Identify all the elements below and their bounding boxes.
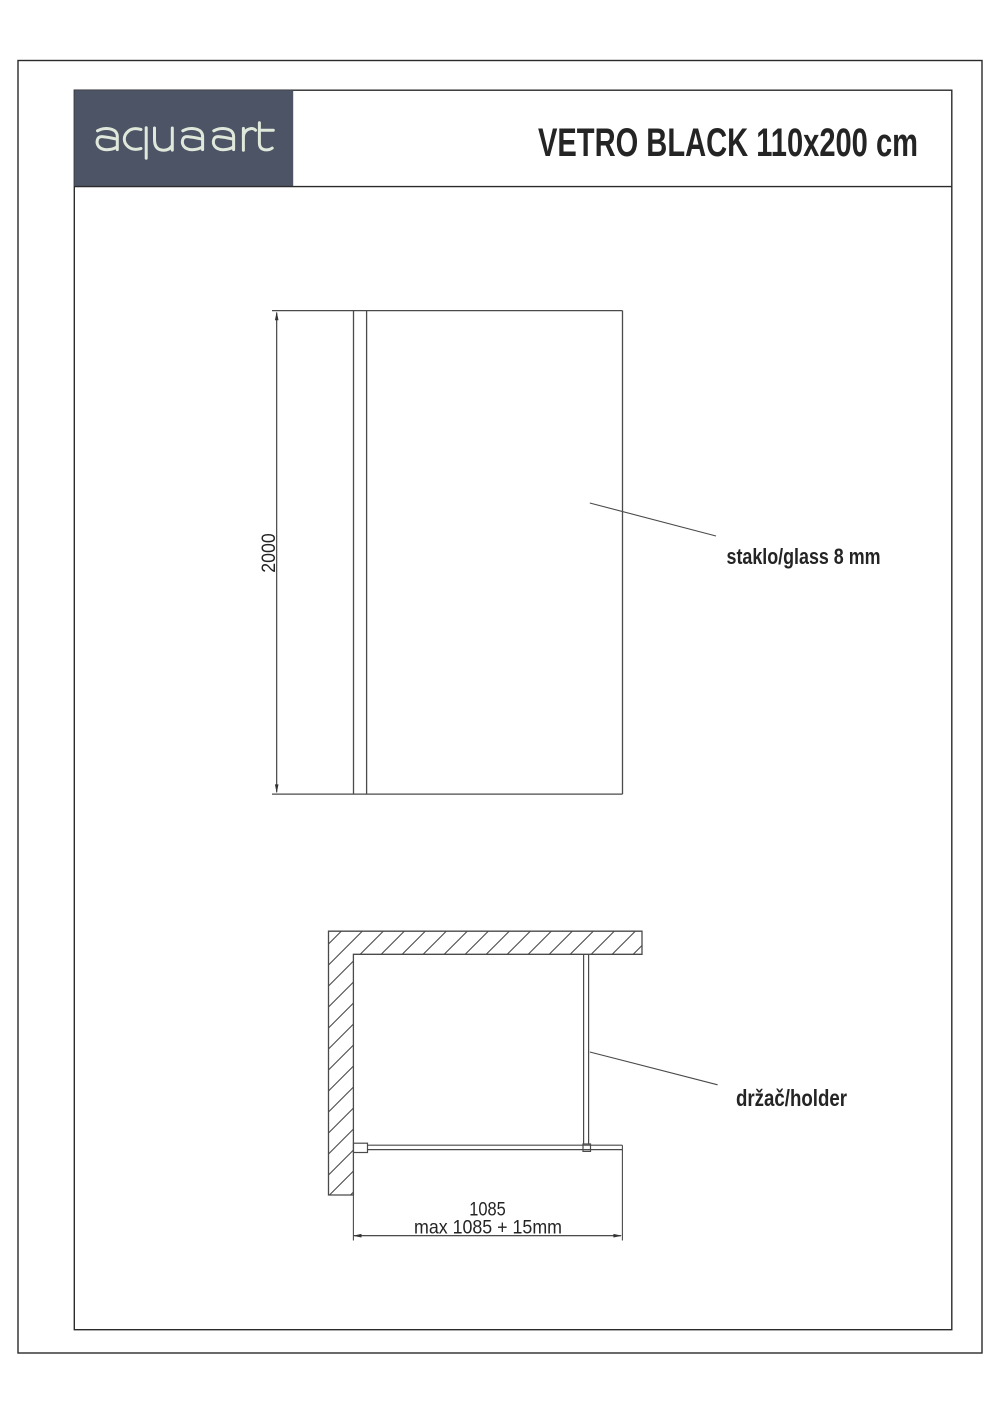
svg-text:max 1085 + 15mm: max 1085 + 15mm: [414, 1217, 562, 1239]
svg-text:VETRO BLACK 110x200 cm: VETRO BLACK 110x200 cm: [538, 121, 918, 165]
svg-text:držač/holder: držač/holder: [736, 1085, 847, 1111]
svg-text:staklo/glass 8 mm: staklo/glass 8 mm: [727, 544, 881, 569]
svg-text:2000: 2000: [258, 533, 280, 573]
